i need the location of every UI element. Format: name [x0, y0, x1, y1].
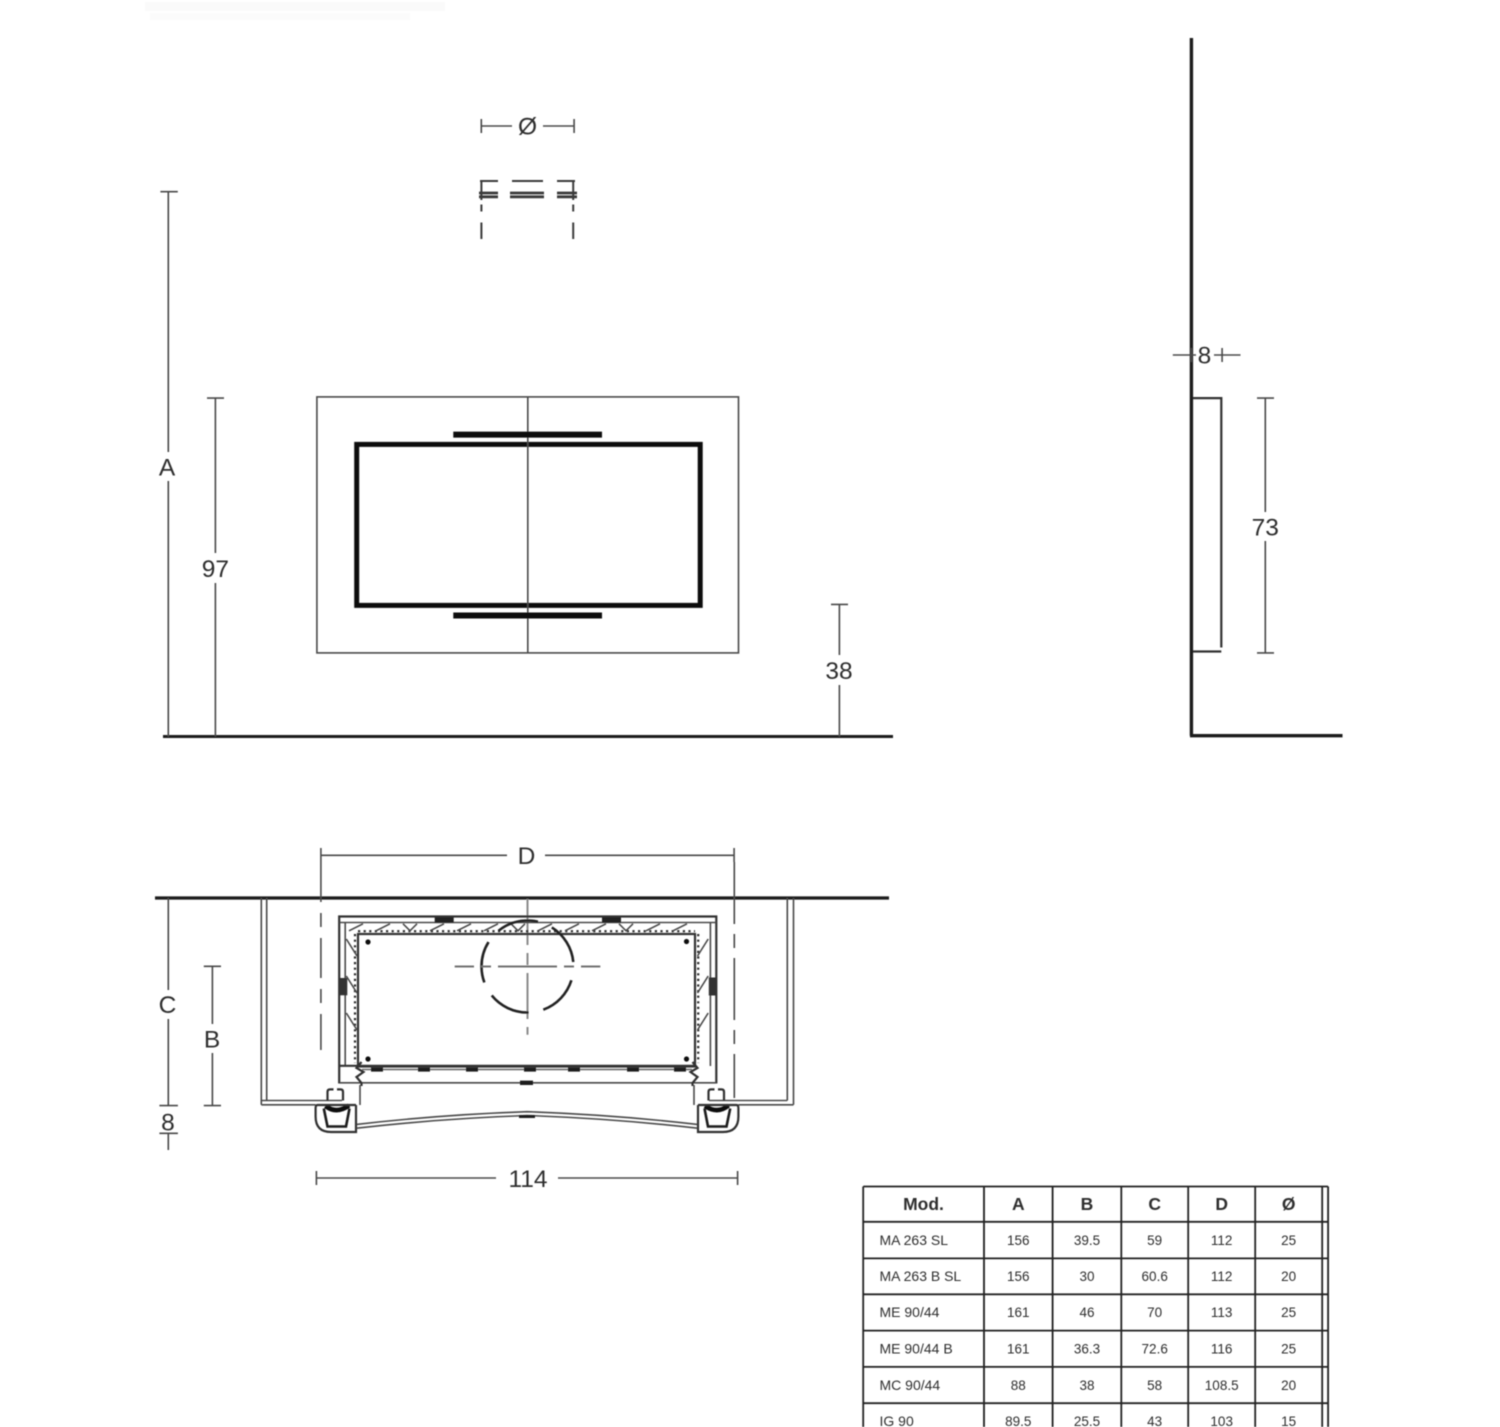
- svg-text:156: 156: [1007, 1233, 1030, 1248]
- svg-text:70: 70: [1147, 1305, 1162, 1320]
- svg-text:ME 90/44 B: ME 90/44 B: [880, 1341, 953, 1357]
- svg-text:MC 90/44: MC 90/44: [880, 1377, 941, 1393]
- svg-text:114: 114: [508, 1166, 547, 1193]
- svg-text:C: C: [159, 992, 177, 1019]
- svg-text:112: 112: [1211, 1269, 1233, 1284]
- svg-text:ME 90/44: ME 90/44: [880, 1304, 940, 1320]
- svg-text:C: C: [1148, 1194, 1161, 1214]
- svg-text:156: 156: [1007, 1269, 1030, 1284]
- svg-text:Ø: Ø: [1282, 1194, 1296, 1214]
- svg-text:60.6: 60.6: [1142, 1269, 1168, 1284]
- svg-text:161: 161: [1007, 1342, 1030, 1357]
- svg-text:112: 112: [1211, 1233, 1233, 1248]
- svg-text:161: 161: [1007, 1305, 1030, 1320]
- svg-text:A: A: [159, 455, 176, 482]
- svg-text:Mod.: Mod.: [903, 1194, 944, 1214]
- svg-text:8: 8: [1198, 342, 1212, 369]
- svg-text:IG 90: IG 90: [880, 1413, 914, 1427]
- svg-text:88: 88: [1011, 1378, 1026, 1393]
- svg-text:58: 58: [1147, 1378, 1162, 1393]
- svg-text:89.5: 89.5: [1005, 1414, 1031, 1427]
- svg-text:20: 20: [1281, 1269, 1296, 1284]
- svg-text:25.5: 25.5: [1074, 1414, 1100, 1427]
- svg-text:8: 8: [161, 1109, 175, 1136]
- svg-text:D: D: [1215, 1194, 1228, 1214]
- svg-text:73: 73: [1252, 515, 1279, 542]
- svg-text:38: 38: [825, 658, 852, 685]
- svg-text:43: 43: [1147, 1414, 1162, 1427]
- svg-text:59: 59: [1147, 1233, 1162, 1248]
- svg-text:108.5: 108.5: [1205, 1378, 1239, 1393]
- svg-text:D: D: [518, 843, 536, 870]
- svg-text:116: 116: [1211, 1342, 1233, 1357]
- svg-text:15: 15: [1281, 1414, 1296, 1427]
- svg-text:72.6: 72.6: [1142, 1342, 1168, 1357]
- svg-text:113: 113: [1211, 1305, 1233, 1320]
- svg-text:103: 103: [1210, 1414, 1233, 1427]
- svg-text:30: 30: [1079, 1269, 1094, 1284]
- svg-text:B: B: [1081, 1194, 1094, 1214]
- svg-text:25: 25: [1281, 1233, 1296, 1248]
- svg-text:25: 25: [1281, 1305, 1296, 1320]
- svg-text:20: 20: [1281, 1378, 1296, 1393]
- svg-text:MA 263 B SL: MA 263 B SL: [880, 1268, 962, 1284]
- svg-text:A: A: [1012, 1194, 1025, 1214]
- svg-text:97: 97: [202, 556, 229, 583]
- svg-text:38: 38: [1079, 1378, 1094, 1393]
- svg-text:MA 263 SL: MA 263 SL: [880, 1232, 949, 1248]
- svg-text:25: 25: [1281, 1342, 1296, 1357]
- svg-text:46: 46: [1079, 1305, 1094, 1320]
- svg-text:36.3: 36.3: [1074, 1342, 1100, 1357]
- svg-text:Ø: Ø: [518, 114, 537, 141]
- svg-text:39.5: 39.5: [1074, 1233, 1100, 1248]
- svg-text:B: B: [204, 1026, 220, 1053]
